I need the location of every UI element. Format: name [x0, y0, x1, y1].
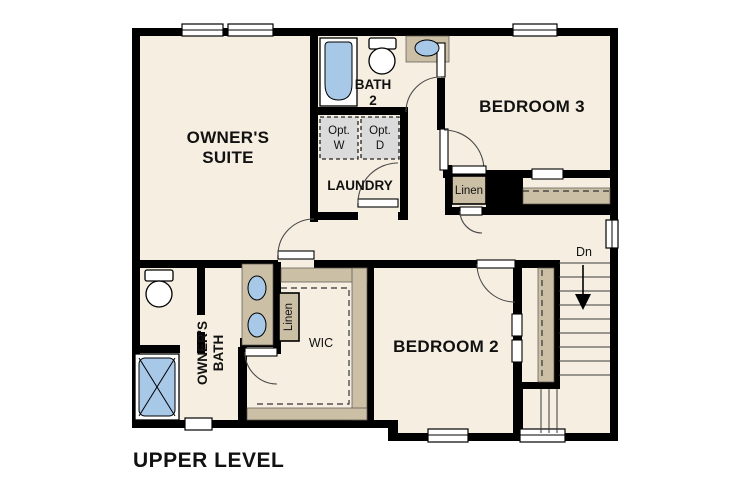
shower-icon [135, 354, 179, 420]
bedroom3-label: BEDROOM 3 [479, 97, 585, 116]
tub-basin [325, 42, 352, 100]
bathtub-icon [320, 38, 357, 106]
wall [367, 262, 374, 428]
owners-bath-label: BATH [211, 335, 226, 372]
wall [486, 204, 618, 215]
sink-icon [415, 40, 439, 56]
door-leaf [245, 348, 277, 356]
wall [314, 260, 477, 268]
owners-bath-label: OWNER'S [195, 321, 210, 385]
wall [554, 262, 560, 389]
door-leaf [278, 251, 314, 259]
bedroom2-label: BEDROOM 2 [393, 337, 499, 356]
wic-label: WIC [309, 336, 333, 350]
wall [513, 382, 558, 389]
wall [398, 212, 408, 220]
door-leaf [440, 129, 448, 170]
bedroom2-closet-opening [512, 314, 522, 336]
wall [437, 78, 445, 130]
sink-icon [248, 276, 266, 300]
wall [318, 212, 358, 220]
bedroom2-closet-opening [512, 340, 522, 362]
opt-washer-label: W [334, 140, 345, 152]
toilet-icon [369, 38, 396, 74]
bedroom2-closet-shelf [538, 268, 554, 382]
toilet-bowl [146, 281, 172, 307]
optional-dryer-box [361, 117, 399, 159]
optional-dryer [361, 117, 399, 159]
wall [197, 268, 205, 315]
sink-icon [248, 313, 266, 337]
door-leaf [460, 207, 482, 215]
opt-dryer-label: D [376, 140, 384, 152]
laundry-label: LAUNDRY [327, 178, 393, 193]
owners-suite-label: OWNER'S [187, 128, 270, 147]
optional-washer-box [320, 117, 358, 159]
optional-washer [320, 117, 358, 159]
door-leaf [358, 199, 398, 207]
owners-linen-label: Linen [283, 303, 295, 331]
linen-closet-opening [452, 166, 486, 174]
wall [132, 345, 180, 353]
wall [132, 420, 390, 428]
wic-shelf-right [352, 268, 367, 420]
owners-suite-label: SUITE [202, 148, 254, 167]
toilet-tank [369, 38, 396, 49]
bath2-label: BATH [355, 77, 392, 92]
wall [310, 36, 318, 222]
wic-shelf-bottom [247, 408, 367, 420]
floor-plan: OWNER'S SUITE BATH 2 LAUNDRY BEDROOM 3 B… [0, 0, 750, 500]
toilet-tank [145, 270, 173, 281]
bedroom3-closet-opening [532, 169, 563, 179]
door-leaf [477, 260, 515, 268]
toilet-icon [145, 270, 173, 307]
wall [318, 107, 403, 115]
opt-washer-label: Opt. [328, 125, 350, 137]
stairs-down-label: Dn [576, 245, 592, 259]
wall [390, 433, 618, 441]
bath2-label: 2 [369, 93, 377, 108]
floor-plan-page: OWNER'S SUITE BATH 2 LAUNDRY BEDROOM 3 B… [0, 0, 750, 500]
window [185, 418, 212, 430]
wall [400, 107, 408, 220]
page-title: UPPER LEVEL [133, 449, 284, 472]
opt-dryer-label: Opt. [369, 125, 391, 137]
hall-linen-label: Linen [455, 185, 483, 197]
toilet-bowl [369, 48, 395, 74]
